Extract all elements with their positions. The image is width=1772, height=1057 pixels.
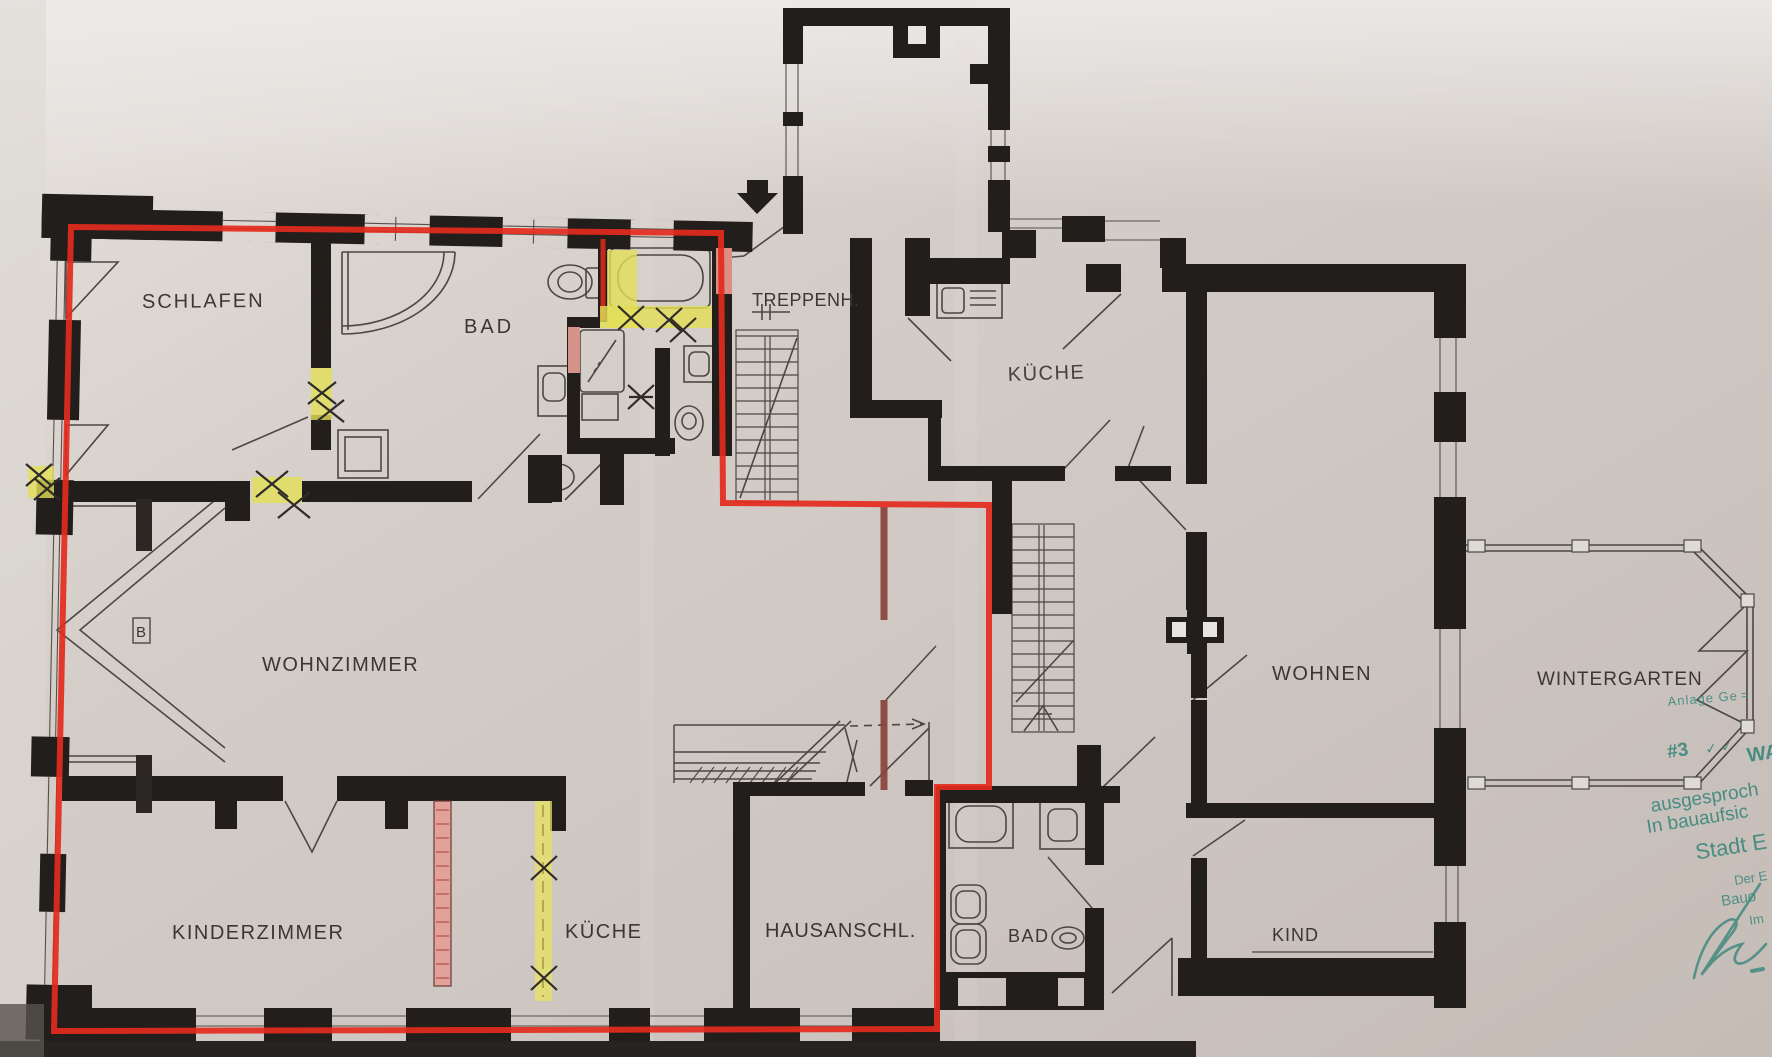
svg-text:WOHNEN: WOHNEN: [1272, 663, 1372, 685]
svg-text:KÜCHE: KÜCHE: [1007, 361, 1085, 386]
svg-text:HAUSANSCHL.: HAUSANSCHL.: [765, 920, 916, 942]
svg-text:KIND: KIND: [1272, 925, 1319, 945]
svg-text:BAD: BAD: [464, 316, 514, 338]
svg-text:TREPPENH.: TREPPENH.: [752, 290, 860, 310]
svg-text:WOHNZIMMER: WOHNZIMMER: [262, 654, 419, 676]
svg-text:Im: Im: [1748, 911, 1765, 928]
svg-text:KÜCHE: KÜCHE: [565, 921, 643, 943]
svg-text:B: B: [136, 624, 146, 641]
svg-text:BAD: BAD: [1008, 926, 1050, 946]
svg-text:KINDERZIMMER: KINDERZIMMER: [172, 922, 344, 944]
svg-text:#3: #3: [1666, 739, 1690, 763]
svg-text:SCHLAFEN: SCHLAFEN: [142, 290, 265, 313]
svg-text:WA: WA: [1746, 741, 1772, 767]
svg-text:WINTERGARTEN: WINTERGARTEN: [1537, 669, 1703, 690]
